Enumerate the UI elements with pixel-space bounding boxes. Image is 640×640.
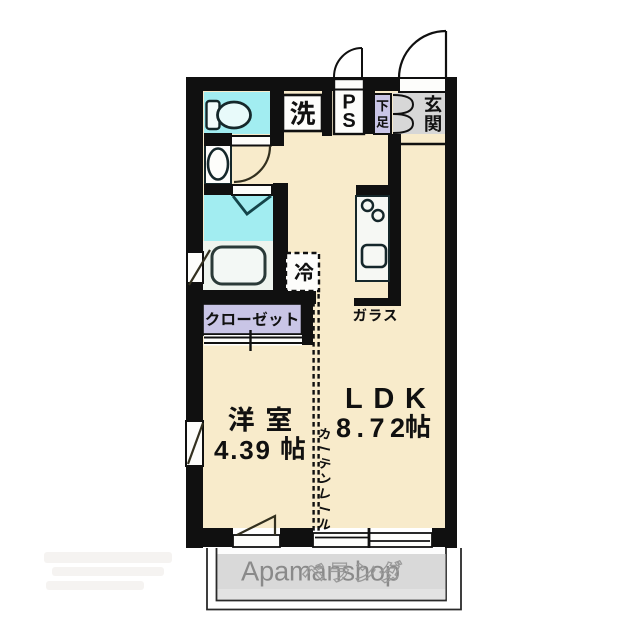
svg-text:S: S [342,110,355,132]
svg-text:Apamanshop: Apamanshop [241,556,400,587]
svg-text:8.72: 8.72 [336,413,405,443]
svg-text:4.39: 4.39 [214,435,270,465]
svg-text:LDK: LDK [345,383,426,415]
